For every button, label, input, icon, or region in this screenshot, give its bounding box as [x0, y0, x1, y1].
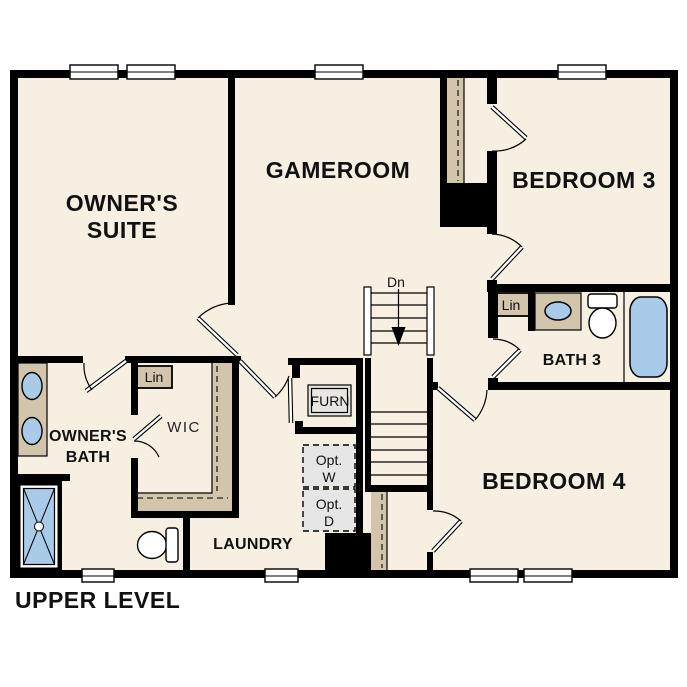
wic-shelf-vertical [212, 363, 233, 493]
lin-wic-label: Lin [145, 369, 164, 385]
shower [16, 481, 62, 572]
stairs-down-label: Dn [387, 274, 405, 290]
opt-dryer-label-2: D [324, 513, 334, 529]
bedroom4-label: BEDROOM 4 [482, 468, 626, 494]
bath3-sink [545, 302, 571, 320]
owners-bath-label-2: BATH [66, 449, 110, 466]
stair-rail-left [364, 287, 371, 355]
bath3-label: BATH 3 [543, 352, 601, 369]
owners-bath-label: OWNER'S [49, 428, 127, 445]
owners-suite-label-2: SUITE [87, 217, 157, 243]
furnace-door [290, 378, 291, 423]
page-title: UPPER LEVEL [15, 587, 180, 613]
sink [22, 418, 42, 445]
laundry-label: LAUNDRY [213, 536, 293, 553]
bath3-toilet [588, 294, 617, 338]
furnace-label: FURN [311, 393, 350, 409]
opt-dryer-label: Opt. [316, 496, 342, 512]
sink [22, 373, 42, 400]
wic-shelf-bottom [133, 493, 233, 512]
solid-block-bottom [325, 533, 371, 570]
bedroom3-closet-shelf [447, 77, 464, 183]
solid-block-chase [440, 183, 497, 227]
bedroom3-label: BEDROOM 3 [512, 167, 656, 193]
wic-label: WIC [167, 419, 201, 436]
lin-bath3-label: Lin [502, 297, 521, 313]
floor-plan: OWNER'S SUITE GAMEROOM BEDROOM 3 BEDROOM… [0, 0, 687, 687]
understair-shelf [371, 492, 387, 570]
floor-plan-drawing: OWNER'S SUITE GAMEROOM BEDROOM 3 BEDROOM… [0, 0, 687, 687]
stair-rail-right [427, 287, 434, 355]
owners-suite-label: OWNER'S [66, 190, 178, 216]
gameroom-label: GAMEROOM [266, 157, 411, 183]
opt-washer-label: Opt. [316, 452, 342, 468]
bath3-tub [630, 297, 667, 377]
exterior-wall-right [670, 70, 678, 578]
opt-washer-label-2: W [322, 469, 336, 485]
